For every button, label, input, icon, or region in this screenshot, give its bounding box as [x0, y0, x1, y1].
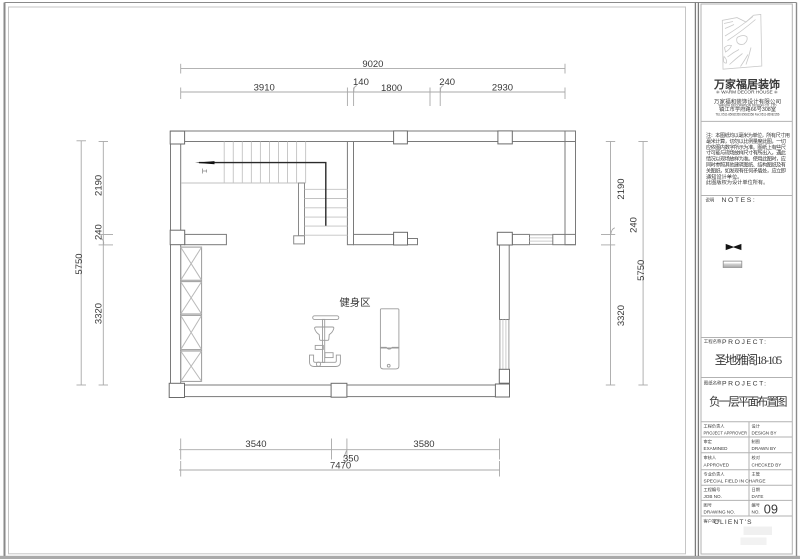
svg-text:3580: 3580	[413, 439, 434, 450]
svg-text:3320: 3320	[616, 305, 627, 326]
svg-text:EXAMINED: EXAMINED	[704, 446, 729, 451]
svg-text:1800: 1800	[381, 83, 402, 94]
svg-text:PROJECT:: PROJECT:	[722, 339, 768, 346]
svg-text:寸可能与现场放样尺寸有所出入，遇此: 寸可能与现场放样尺寸有所出入，遇此	[706, 149, 787, 157]
svg-text:2190: 2190	[93, 175, 104, 196]
svg-text:SPECIAL FIELD IN CHARGE: SPECIAL FIELD IN CHARGE	[704, 479, 766, 484]
svg-text:编号: 编号	[752, 502, 760, 509]
svg-text:DRAWING NO.: DRAWING NO.	[704, 510, 735, 515]
svg-text:3320: 3320	[93, 303, 104, 324]
svg-text:DATE: DATE	[752, 494, 764, 499]
svg-text:2190: 2190	[616, 178, 627, 199]
svg-text:NOTES:: NOTES:	[722, 197, 757, 204]
svg-text:校对: 校对	[752, 454, 760, 461]
svg-text:PROJECT APPROVER: PROJECT APPROVER	[704, 431, 748, 436]
svg-text:❊ WARM DECOR HOUSE ❊: ❊ WARM DECOR HOUSE ❊	[716, 89, 779, 94]
svg-text:应依图内数字所示为准。图纸上有些尺: 应依图内数字所示为准。图纸上有些尺	[706, 143, 786, 151]
svg-text:240: 240	[629, 217, 640, 233]
svg-text:5750: 5750	[636, 260, 647, 281]
svg-text:毫米计算，切勿以比例量度此图，一切: 毫米计算，切勿以比例量度此图，一切	[706, 137, 786, 145]
svg-text:JOB NO.: JOB NO.	[704, 494, 722, 499]
svg-text:PROJECT:: PROJECT:	[722, 381, 768, 388]
svg-text:设计: 设计	[752, 423, 760, 430]
svg-text:CLIENT'S: CLIENT'S	[714, 519, 753, 526]
svg-text:制图: 制图	[752, 438, 760, 445]
svg-text:图纸名称: 图纸名称	[704, 380, 722, 387]
svg-text:140: 140	[353, 77, 369, 88]
svg-text:通知设计单位。: 通知设计单位。	[706, 172, 742, 180]
svg-text:240: 240	[439, 77, 455, 88]
svg-text:NO.: NO.	[752, 510, 760, 515]
svg-text:工程负责人: 工程负责人	[704, 423, 726, 430]
svg-text:240: 240	[93, 224, 104, 240]
svg-text:专业负责人: 专业负责人	[704, 471, 726, 478]
svg-text:工程名称: 工程名称	[704, 338, 722, 345]
svg-text:09: 09	[764, 502, 778, 517]
svg-text:CHECKED BY: CHECKED BY	[752, 463, 782, 468]
svg-text:3540: 3540	[245, 439, 266, 450]
svg-text:工程编号: 工程编号	[704, 486, 721, 493]
svg-text:审核人: 审核人	[704, 454, 717, 461]
svg-text:同时参照其他建筑图纸、结构图纸及有: 同时参照其他建筑图纸、结构图纸及有	[706, 161, 786, 169]
svg-text:DRAWN BY: DRAWN BY	[752, 446, 777, 451]
svg-text:负一层平面布置图: 负一层平面布置图	[709, 394, 788, 408]
svg-text:TEL:0511-85082356 85082358 Fa: TEL:0511-85082356 85082358 Fax:0511-8508…	[716, 112, 780, 116]
svg-text:DESIGN BY: DESIGN BY	[752, 431, 777, 436]
svg-text:关图纸，如发现有任何矛盾处，应立即: 关图纸，如发现有任何矛盾处，应立即	[706, 166, 786, 174]
svg-text:审定: 审定	[704, 438, 712, 445]
svg-text:注：本图纸均以毫米为单位，所有尺寸用: 注：本图纸均以毫米为单位，所有尺寸用	[706, 131, 790, 139]
svg-text:7470: 7470	[330, 460, 351, 471]
svg-text:9020: 9020	[362, 59, 383, 70]
svg-text:圣地雅阁18-105: 圣地雅阁18-105	[715, 352, 783, 367]
svg-text:APPROVED: APPROVED	[704, 463, 730, 468]
svg-text:3910: 3910	[254, 82, 275, 93]
svg-text:此图版权为设计单位所有。: 此图版权为设计单位所有。	[706, 178, 768, 186]
svg-text:情况以现场放样为准。使用此图时，应: 情况以现场放样为准。使用此图时，应	[706, 155, 786, 163]
svg-text:健身区: 健身区	[339, 296, 370, 309]
svg-text:2930: 2930	[492, 82, 513, 93]
svg-text:5750: 5750	[74, 253, 85, 274]
svg-text:主管: 主管	[752, 471, 760, 478]
svg-text:说明: 说明	[706, 197, 715, 204]
